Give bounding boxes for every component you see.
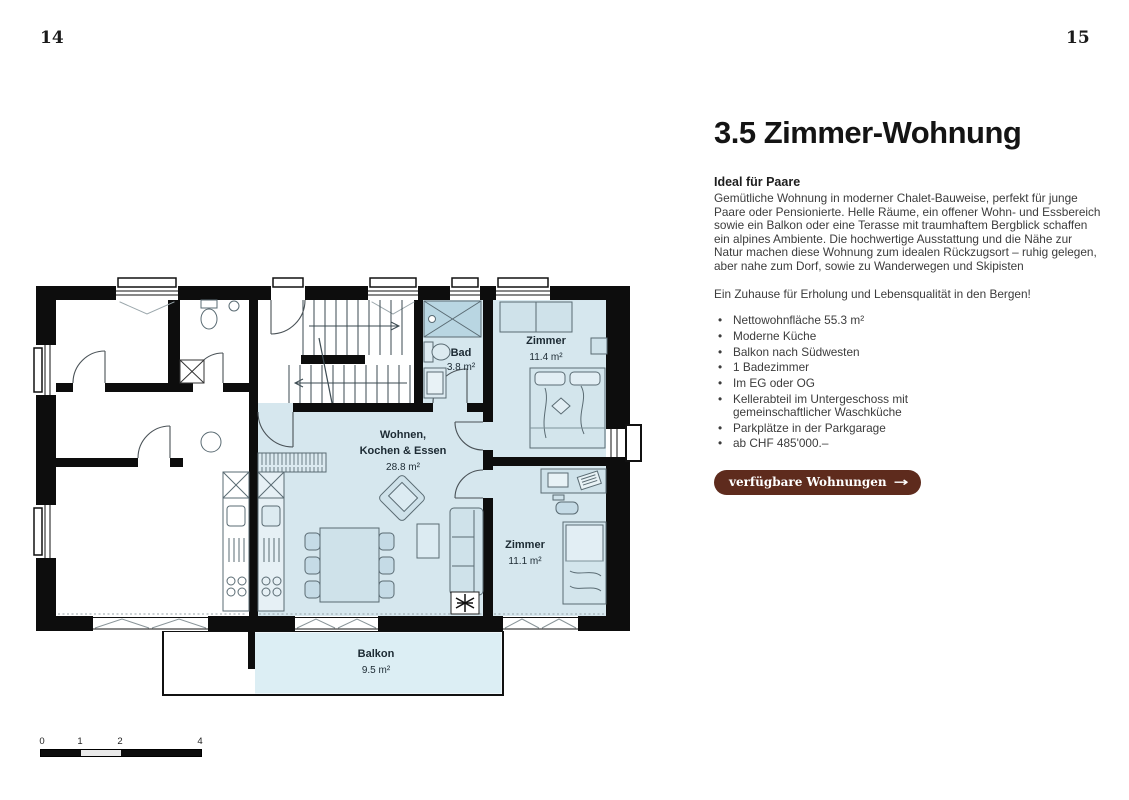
right-window bbox=[606, 425, 641, 461]
room-area-bad: 3.8 m² bbox=[447, 362, 476, 373]
available-apartments-button[interactable]: verfügbare Wohnungen → bbox=[714, 470, 921, 495]
feature-item: •Nettowohnfläche 55.3 m² bbox=[714, 314, 1102, 327]
room-area-living: 28.8 m² bbox=[386, 462, 421, 473]
page-number-right: 15 bbox=[1066, 28, 1090, 48]
balcony: Balkon 9.5 m² bbox=[163, 631, 503, 695]
feature-item: •Balkon nach Südwesten bbox=[714, 346, 1102, 359]
article-paragraph: Gemütliche Wohnung in moderner Chalet-Ba… bbox=[714, 192, 1102, 274]
wc-toilet-tank bbox=[201, 300, 217, 308]
room-label-living-1: Wohnen, bbox=[380, 429, 426, 441]
page-number-left: 14 bbox=[40, 28, 64, 48]
coffee-table bbox=[417, 524, 439, 558]
dining-table bbox=[305, 528, 394, 602]
bullet-icon: • bbox=[714, 346, 733, 359]
feature-item: •Moderne Küche bbox=[714, 330, 1102, 343]
feature-item: •Kellerabteil im Untergeschoss mit gemei… bbox=[714, 393, 1102, 419]
kitchen-sink bbox=[262, 506, 280, 526]
article-highlight: Ein Zuhause für Erholung und Lebensquali… bbox=[714, 288, 1102, 302]
plant bbox=[451, 592, 479, 614]
toilet-bowl bbox=[432, 344, 450, 360]
available-apartments-label: verfügbare Wohnungen bbox=[729, 475, 887, 489]
room-label-zimmer1: Zimmer bbox=[526, 335, 566, 347]
feature-item: •Parkplätze in der Parkgarage bbox=[714, 422, 1102, 435]
room-area-zimmer2: 11.1 m² bbox=[508, 556, 542, 567]
wc-toilet-bowl bbox=[201, 309, 217, 329]
scale-tick: 4 bbox=[197, 736, 202, 747]
single-bed bbox=[563, 522, 606, 604]
room-label-zimmer2: Zimmer bbox=[505, 539, 545, 551]
stairwell-entry-opening bbox=[271, 278, 305, 300]
article-subtitle: Ideal für Paare bbox=[714, 175, 1102, 189]
feature-item: •1 Badezimmer bbox=[714, 361, 1102, 374]
wc-sink bbox=[229, 301, 239, 311]
neighbor-sink-round bbox=[201, 432, 221, 452]
scale-bar-strip bbox=[40, 749, 202, 757]
scale-tick: 0 bbox=[39, 736, 44, 747]
stairs bbox=[289, 300, 410, 403]
sofa bbox=[450, 508, 483, 595]
feature-item: •ab CHF 485'000.– bbox=[714, 437, 1102, 450]
bullet-icon: • bbox=[714, 314, 733, 327]
arrow-right-icon: → bbox=[893, 475, 908, 489]
bottom-windows bbox=[93, 616, 578, 631]
bullet-icon: • bbox=[714, 422, 733, 435]
bullet-icon: • bbox=[714, 377, 733, 390]
bullet-icon: • bbox=[714, 393, 733, 419]
room-area-balkon: 9.5 m² bbox=[362, 665, 391, 676]
scale-bar: 0 1 2 4 bbox=[40, 736, 210, 760]
room-label-balkon: Balkon bbox=[358, 648, 395, 660]
kitchen-dishrack bbox=[258, 453, 326, 472]
nightstand bbox=[591, 338, 607, 354]
room-label-bad: Bad bbox=[451, 347, 472, 359]
monitor bbox=[548, 473, 568, 487]
kitchen-burners bbox=[262, 588, 270, 596]
feature-list: •Nettowohnfläche 55.3 m² •Moderne Küche … bbox=[714, 314, 1102, 450]
double-bed bbox=[530, 368, 605, 448]
scale-tick: 1 bbox=[77, 736, 82, 747]
neighbor-fixtures bbox=[180, 300, 249, 611]
bullet-icon: • bbox=[714, 330, 733, 343]
article-column: 3.5 Zimmer-Wohnung Ideal für Paare Gemüt… bbox=[714, 116, 1102, 495]
feature-item: •Im EG oder OG bbox=[714, 377, 1102, 390]
desk-chair bbox=[556, 502, 578, 514]
room-area-zimmer1: 11.4 m² bbox=[529, 352, 563, 363]
floorplan-svg: Balkon 9.5 m² bbox=[33, 276, 645, 701]
room-label-living-2: Kochen & Essen bbox=[360, 445, 447, 457]
bullet-icon: • bbox=[714, 361, 733, 374]
page-title: 3.5 Zimmer-Wohnung bbox=[714, 116, 1102, 150]
bullet-icon: • bbox=[714, 437, 733, 450]
scale-tick: 2 bbox=[117, 736, 122, 747]
